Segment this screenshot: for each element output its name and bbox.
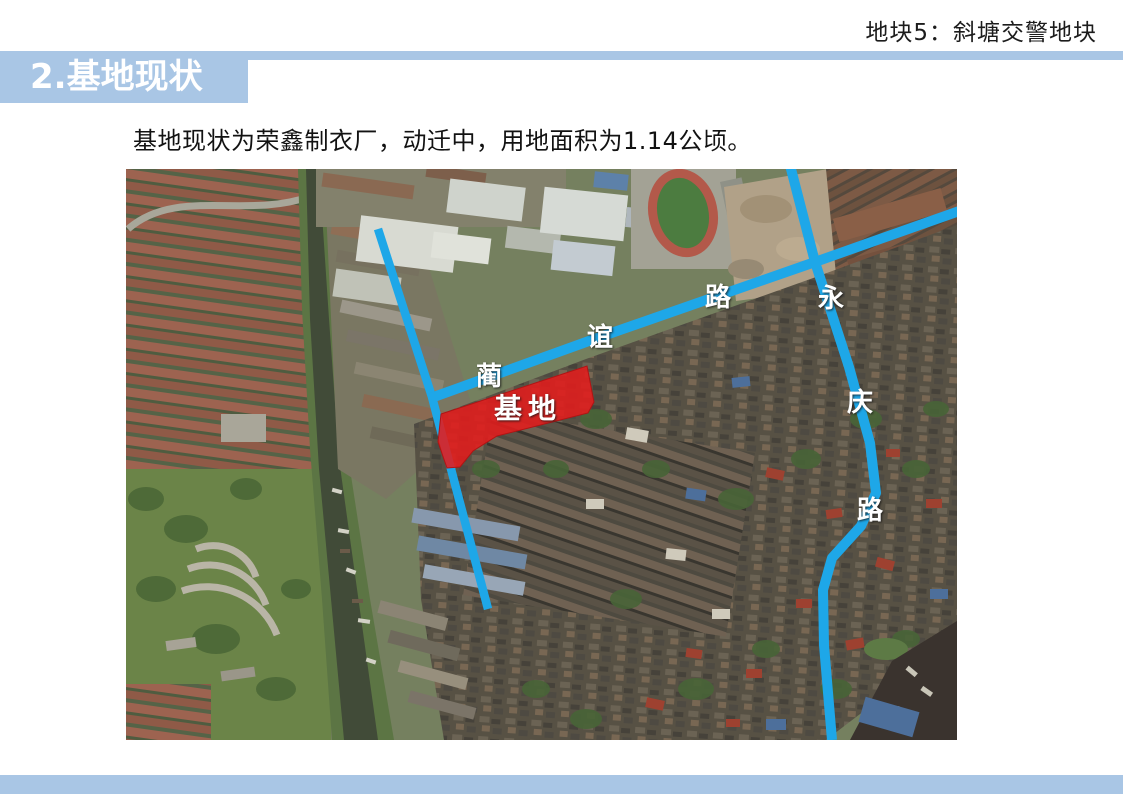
site-label: 基地 xyxy=(494,392,562,425)
road-label-yongqing-1: 永 xyxy=(818,284,844,314)
road-label-linyi-3: 路 xyxy=(705,282,732,313)
body-paragraph: 基地现状为荣鑫制衣厂，动迁中，用地面积为1.14公顷。 xyxy=(133,121,752,156)
slide-canvas: 地块5：斜塘交警地块 2.基地现状 基地现状为荣鑫制衣厂，动迁中，用地面积为1.… xyxy=(0,0,1123,794)
road-label-yongqing-2: 庆 xyxy=(847,387,873,418)
section-title: 2.基地现状 xyxy=(0,51,248,103)
satellite-map-svg: 蔺 谊 路 永 庆 路 基地 xyxy=(126,169,957,740)
footer-bar xyxy=(0,775,1123,794)
road-label-yongqing-3: 路 xyxy=(857,495,884,526)
satellite-map-figure: 蔺 谊 路 永 庆 路 基地 xyxy=(126,169,957,740)
section-title-bar: 2.基地现状 xyxy=(0,51,248,103)
road-label-linyi-1: 蔺 xyxy=(476,362,502,392)
road-label-linyi-2: 谊 xyxy=(587,322,613,353)
plot-corner-label: 地块5：斜塘交警地块 xyxy=(865,13,1097,47)
residential-left-texture xyxy=(126,169,318,479)
park-lower-left xyxy=(126,469,331,740)
